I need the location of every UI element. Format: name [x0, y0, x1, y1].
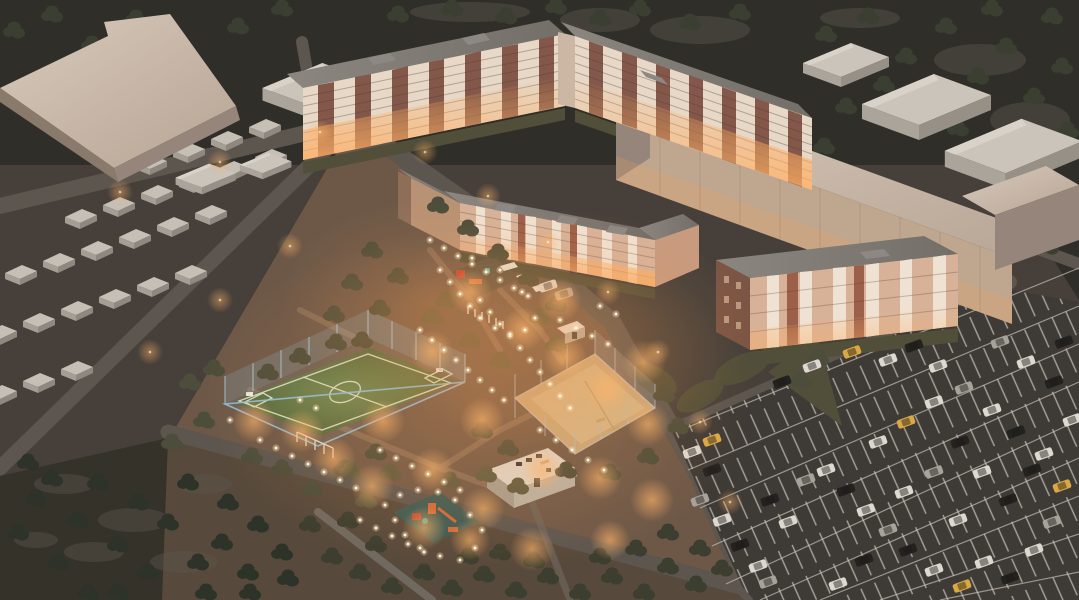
slab-junction-tower	[558, 32, 575, 108]
render-viewport: Aerial dusk render of a residential comp…	[0, 0, 1079, 600]
aerial-render: Aerial dusk render of a residential comp…	[0, 0, 1079, 600]
